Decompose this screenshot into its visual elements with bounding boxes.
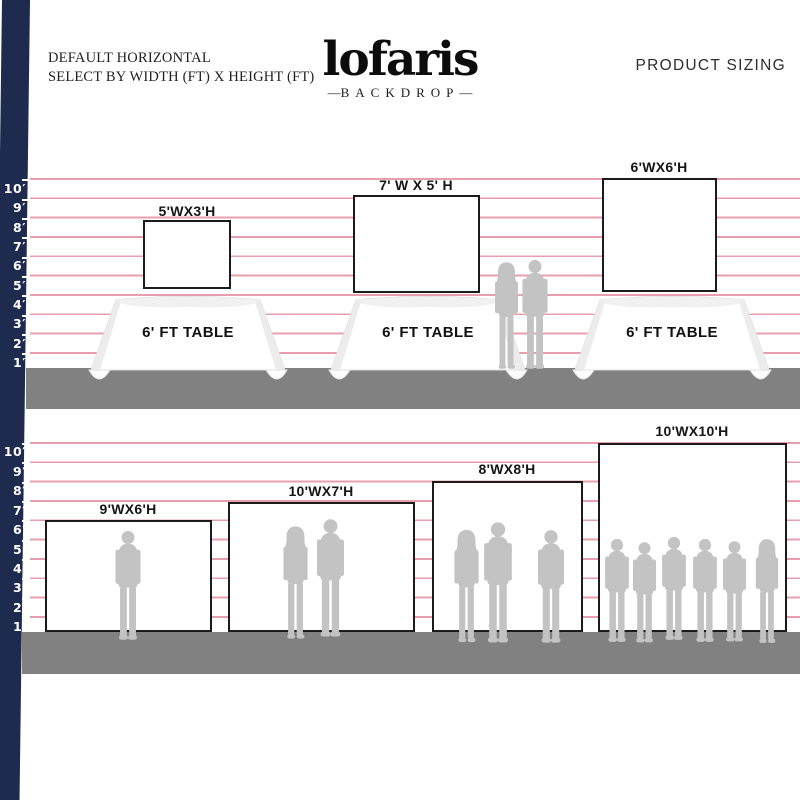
ruler-label: 8′ xyxy=(0,220,26,236)
mode-line-1: DEFAULT HORIZONTAL xyxy=(48,49,314,68)
ruler-label: 6′ xyxy=(0,522,26,538)
size-label-7x5: 7' W X 5' H xyxy=(346,177,486,193)
ruler-label: 10′ xyxy=(0,181,26,197)
silhouette-couple-top xyxy=(488,257,568,371)
ruler-tick xyxy=(22,578,30,580)
ruler-tick xyxy=(22,353,30,355)
ruler-tick xyxy=(22,218,30,220)
ruler-label: 7′ xyxy=(0,503,26,519)
size-label-6x6: 6'WX6'H xyxy=(589,159,729,175)
ruler-tick xyxy=(22,334,30,336)
ruler-label: 3′ xyxy=(0,316,26,332)
ruler-label: 3′ xyxy=(0,580,26,596)
ruler-label: 2′ xyxy=(0,336,26,352)
ruler-label: 2′ xyxy=(0,600,26,616)
size-label-10x7: 10'WX7'H xyxy=(251,483,391,499)
ruler-tick xyxy=(22,501,30,503)
ruler-tick xyxy=(22,462,30,464)
ruler-label: 4′ xyxy=(0,561,26,577)
ruler-label: 1′ xyxy=(0,355,26,371)
mode-line-2: SELECT BY WIDTH (FT) X HEIGHT (FT) xyxy=(48,68,314,87)
ruler-tick xyxy=(22,559,30,561)
ruler-tick xyxy=(22,540,30,542)
ruler-tick xyxy=(22,179,30,181)
ruler-tick xyxy=(22,276,30,278)
ruler-tick xyxy=(22,482,30,484)
size-label-5x3: 5'WX3'H xyxy=(117,203,257,219)
backdrop-panel-7x5 xyxy=(353,195,480,293)
ruler-label: 5′ xyxy=(0,542,26,558)
ruler-tick xyxy=(22,315,30,317)
backdrop-panel-6x6 xyxy=(602,178,717,292)
ruler-label: 8′ xyxy=(0,483,26,499)
ruler-label: 9′ xyxy=(0,464,26,480)
ruler-tick xyxy=(22,237,30,239)
silhouette-trio-8x8 xyxy=(447,519,587,646)
size-label-8x8: 8'WX8'H xyxy=(437,461,577,477)
ruler-label: 4′ xyxy=(0,297,26,313)
brand-logo: lofaris BACKDROP xyxy=(300,36,500,101)
page-title: PRODUCT SIZING xyxy=(635,57,786,75)
ruler-label: 6′ xyxy=(0,258,26,274)
silhouette-man-9x6 xyxy=(105,527,151,642)
silhouette-couple-10x7 xyxy=(276,516,366,642)
ruler-label: 5′ xyxy=(0,278,26,294)
table-label: 6' FT TABLE xyxy=(572,324,772,341)
size-label-10x10: 10'WX10'H xyxy=(622,423,762,439)
ruler-tick xyxy=(22,617,30,619)
ruler-tick xyxy=(22,257,30,259)
ruler-tick xyxy=(22,443,30,445)
ruler-label: 9′ xyxy=(0,200,26,216)
ruler-tick xyxy=(22,598,30,600)
size-label-9x6: 9'WX6'H xyxy=(58,501,198,517)
ruler-label: 10′ xyxy=(0,444,26,460)
brand-logo-text: lofaris xyxy=(300,36,500,84)
mode-description: DEFAULT HORIZONTAL SELECT BY WIDTH (FT) … xyxy=(48,49,314,86)
ruler-tick xyxy=(22,520,30,522)
ruler-label: 7′ xyxy=(0,239,26,255)
ruler-tick xyxy=(22,199,30,201)
backdrop-panel-5x3 xyxy=(143,220,231,289)
table-label: 6' FT TABLE xyxy=(88,324,288,341)
brand-logo-subtext: BACKDROP xyxy=(300,85,500,101)
product-sizing-infographic: 10′ 9′ 8′ 7′ 6′ 5′ 4′ 3′ 2′ 1′ 10′ 9′ 8′… xyxy=(0,0,800,800)
ruler-tick xyxy=(22,295,30,297)
silhouette-group-10x10 xyxy=(599,532,789,648)
